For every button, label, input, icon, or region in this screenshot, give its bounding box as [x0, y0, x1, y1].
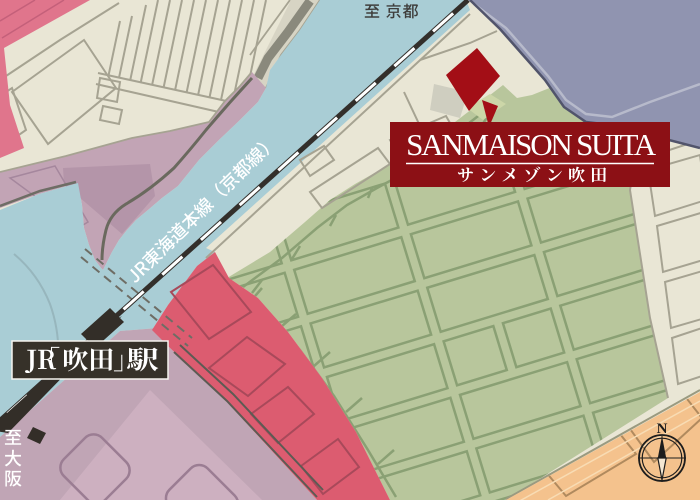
svg-text:SANMAISON SUITA: SANMAISON SUITA [406, 127, 657, 162]
svg-text:N: N [657, 421, 668, 437]
